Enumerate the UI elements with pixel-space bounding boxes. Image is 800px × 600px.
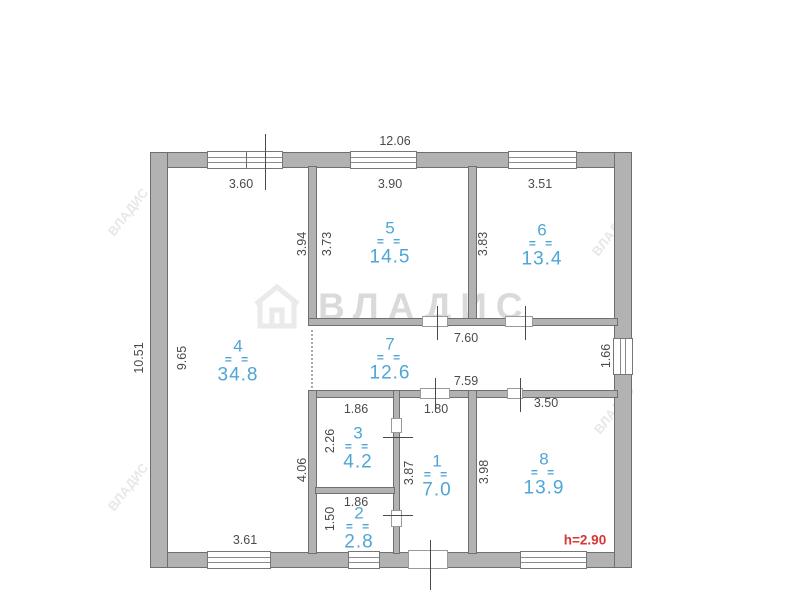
dimension-label: 7.60: [454, 331, 478, 345]
dimension-label: 1.66: [599, 344, 613, 368]
room-label: 6= =13.4: [522, 222, 563, 269]
dimension-label: 7.59: [454, 374, 478, 388]
window: [520, 551, 587, 569]
floor-plan: 12.063.603.903.5110.519.653.943.733.837.…: [0, 0, 800, 600]
dimension-tick: [383, 515, 413, 516]
dimension-tick: [265, 134, 266, 190]
window-mullion: [246, 152, 247, 168]
dimension-label: 3.61: [233, 533, 257, 547]
room-area: 14.5: [370, 247, 411, 266]
dimension-label: 3.94: [295, 232, 309, 256]
dimension-label: 3.98: [477, 460, 491, 484]
dimension-label: 3.87: [402, 461, 416, 485]
room-label: 8= =13.9: [524, 451, 565, 498]
dimension-label: 3.90: [378, 177, 402, 191]
wall: [308, 318, 618, 326]
wall: [150, 152, 168, 568]
room-boundary-dotted-line: [311, 330, 313, 388]
wall: [393, 390, 400, 554]
dimension-label: 1.86: [344, 402, 368, 416]
dimension-label: 1.80: [424, 402, 448, 416]
window: [348, 551, 380, 569]
dimension-label: 3.60: [229, 177, 253, 191]
window: [207, 151, 283, 169]
room-area: 7.0: [422, 480, 451, 499]
dimension-label: 3.73: [320, 232, 334, 256]
room-area: 2.8: [344, 532, 373, 551]
wall: [315, 487, 395, 494]
dimension-label: 3.50: [534, 396, 558, 410]
dimension-tick: [520, 378, 521, 412]
dimension-tick: [437, 306, 438, 340]
dimension-label: 9.65: [175, 346, 189, 370]
window: [207, 551, 271, 569]
window: [508, 151, 577, 169]
room-label: 5= =14.5: [370, 220, 411, 267]
room-area: 4.2: [343, 452, 372, 471]
dimension-label: 10.51: [132, 342, 146, 373]
window: [350, 151, 417, 169]
dimension-label: 2.26: [323, 429, 337, 453]
dimension-label: 4.06: [295, 458, 309, 482]
room-area: 13.4: [522, 249, 563, 268]
room-area: 34.8: [218, 365, 259, 384]
wall: [308, 166, 317, 326]
wall: [308, 390, 618, 398]
room-area: 12.6: [370, 363, 411, 382]
room-label: 1= =7.0: [422, 453, 451, 500]
door-opening: [505, 316, 533, 327]
door-opening: [422, 316, 448, 327]
room-label: 2= =2.8: [344, 505, 373, 552]
wall: [308, 390, 317, 554]
dimension-label: 12.06: [379, 134, 410, 148]
room-area: 13.9: [524, 478, 565, 497]
room-label: 7= =12.6: [370, 336, 411, 383]
dimension-tick: [430, 540, 431, 590]
room-label: 3= =4.2: [343, 425, 372, 472]
dimension-label: 3.83: [476, 232, 490, 256]
door-opening: [391, 418, 402, 433]
room-label: 4= =34.8: [218, 338, 259, 385]
dimension-label: 3.51: [528, 177, 552, 191]
window: [613, 338, 633, 375]
floor-plan-image: ВЛАДИС ВЛАДИСВЛАДИСВЛАДИСВЛАДИС 12.063.6…: [0, 0, 800, 600]
dimension-tick: [383, 437, 413, 438]
wall: [468, 390, 477, 554]
ceiling-height-note: h=2.90: [564, 533, 606, 548]
dimension-tick: [525, 306, 526, 340]
door-opening: [391, 510, 402, 527]
door-opening: [408, 550, 448, 569]
dimension-label: 1.50: [323, 507, 337, 531]
